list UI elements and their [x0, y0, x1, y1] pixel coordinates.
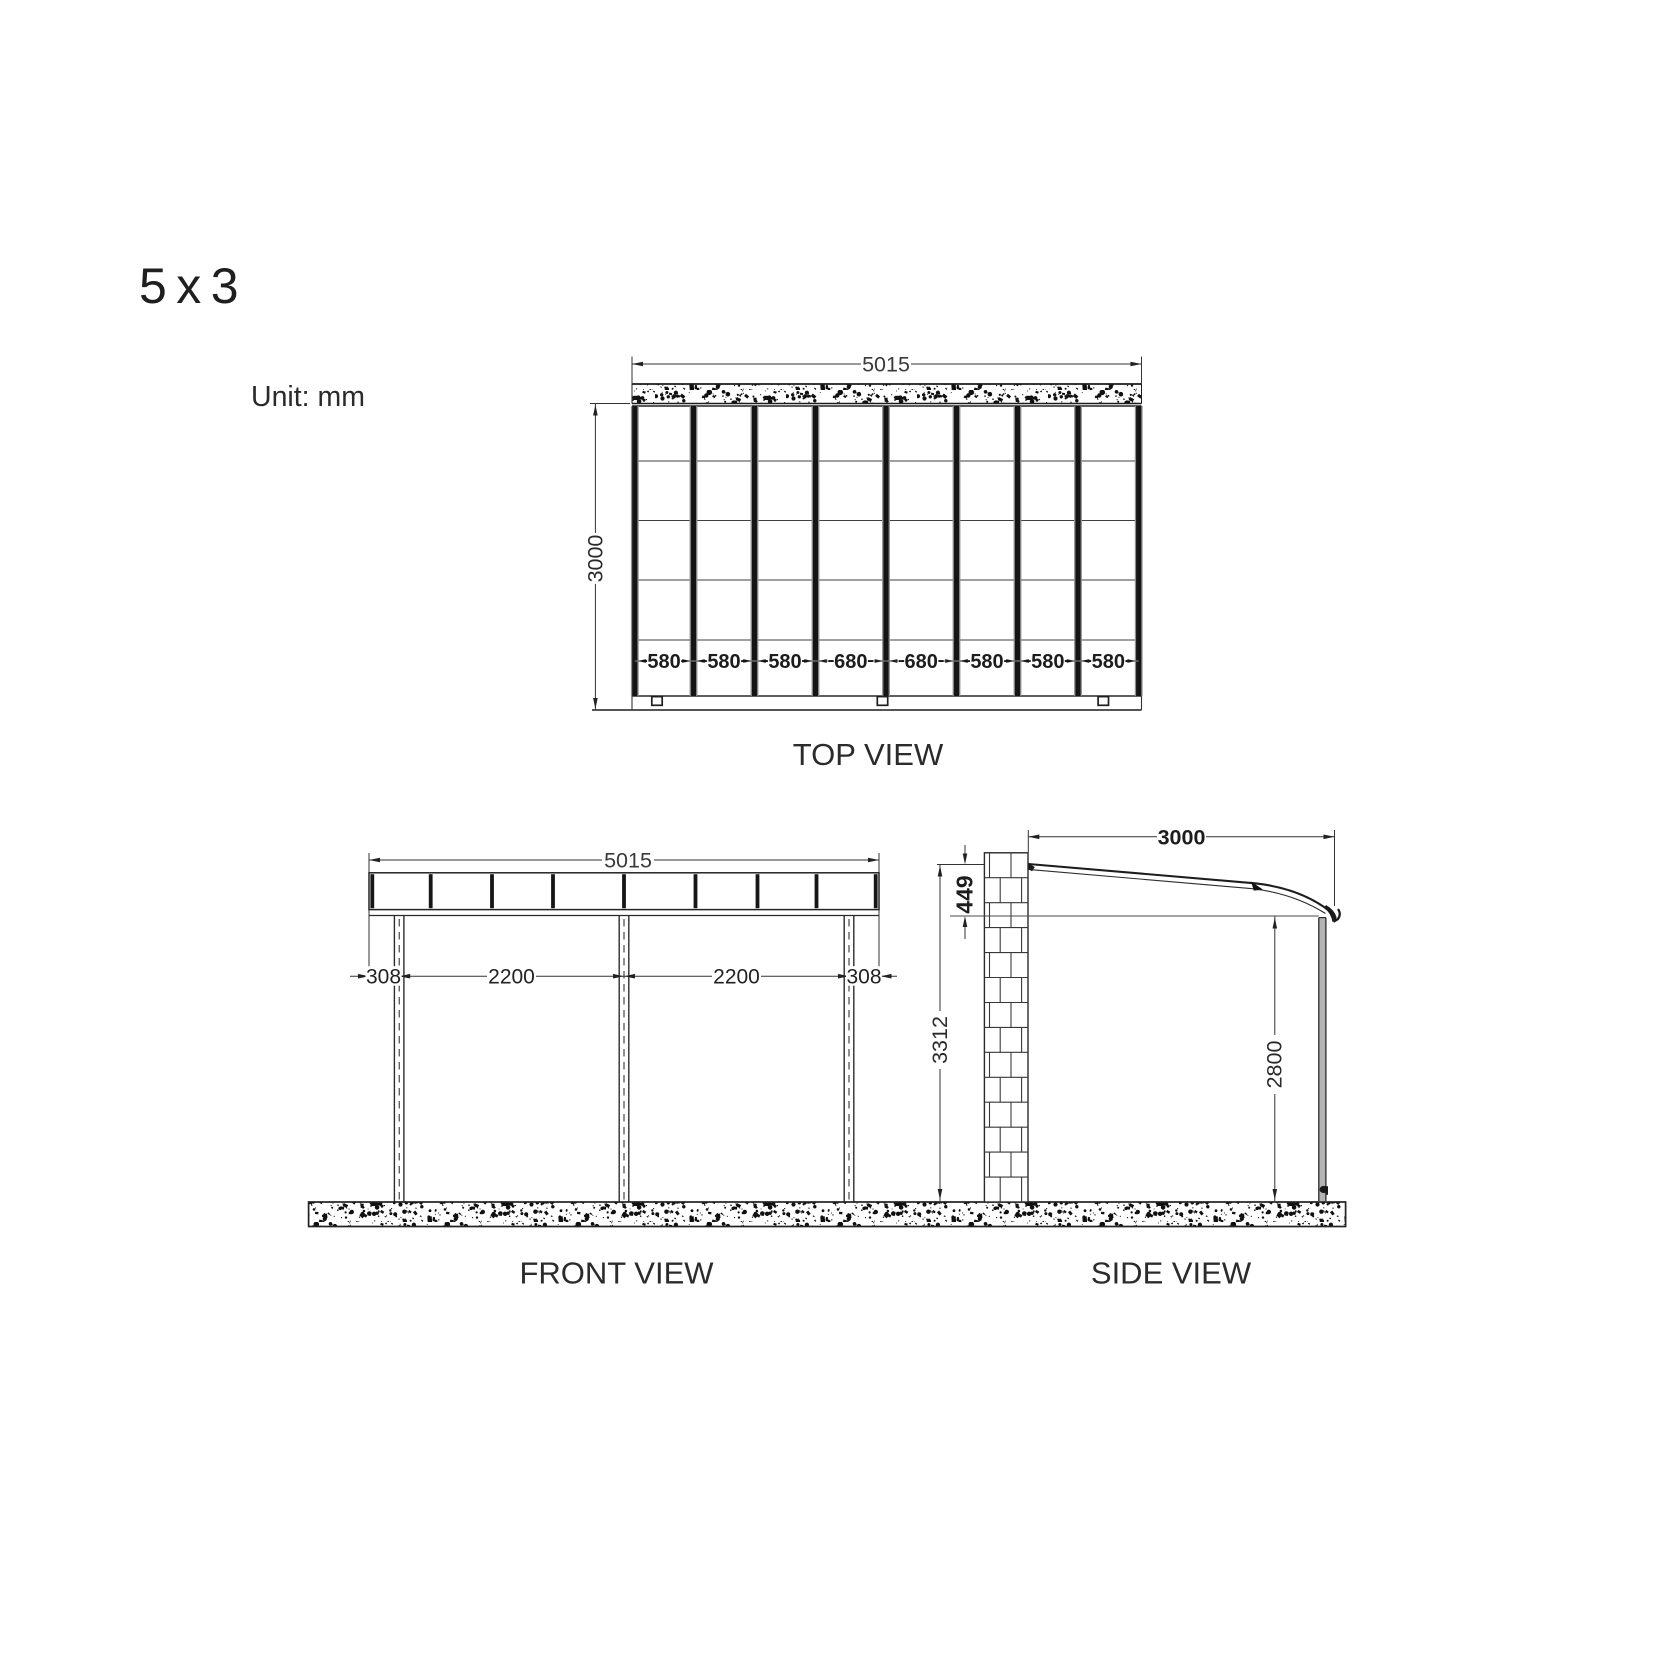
- svg-text:308: 308: [846, 966, 881, 989]
- svg-text:Unit: mm: Unit: mm: [251, 381, 365, 413]
- svg-text:3000: 3000: [584, 535, 608, 583]
- svg-text:680: 680: [834, 651, 867, 673]
- svg-text:3000: 3000: [1158, 825, 1206, 849]
- svg-text:449: 449: [951, 875, 977, 913]
- svg-text:580: 580: [707, 651, 740, 673]
- svg-text:TOP VIEW: TOP VIEW: [793, 737, 944, 772]
- svg-text:FRONT VIEW: FRONT VIEW: [519, 1256, 714, 1291]
- svg-text:308: 308: [366, 966, 401, 989]
- svg-text:2800: 2800: [1263, 1041, 1287, 1089]
- svg-text:680: 680: [905, 651, 938, 673]
- svg-text:SIDE VIEW: SIDE VIEW: [1091, 1256, 1252, 1291]
- svg-text:580: 580: [768, 651, 801, 673]
- svg-text:580: 580: [1031, 651, 1064, 673]
- svg-text:5015: 5015: [862, 353, 910, 377]
- svg-text:3312: 3312: [928, 1016, 952, 1064]
- svg-text:580: 580: [1092, 651, 1125, 673]
- svg-text:2200: 2200: [488, 966, 535, 989]
- svg-text:5015: 5015: [604, 849, 652, 873]
- svg-text:5 x 3: 5 x 3: [139, 258, 237, 314]
- svg-text:2200: 2200: [713, 966, 760, 989]
- svg-text:580: 580: [970, 651, 1003, 673]
- svg-text:580: 580: [647, 651, 680, 673]
